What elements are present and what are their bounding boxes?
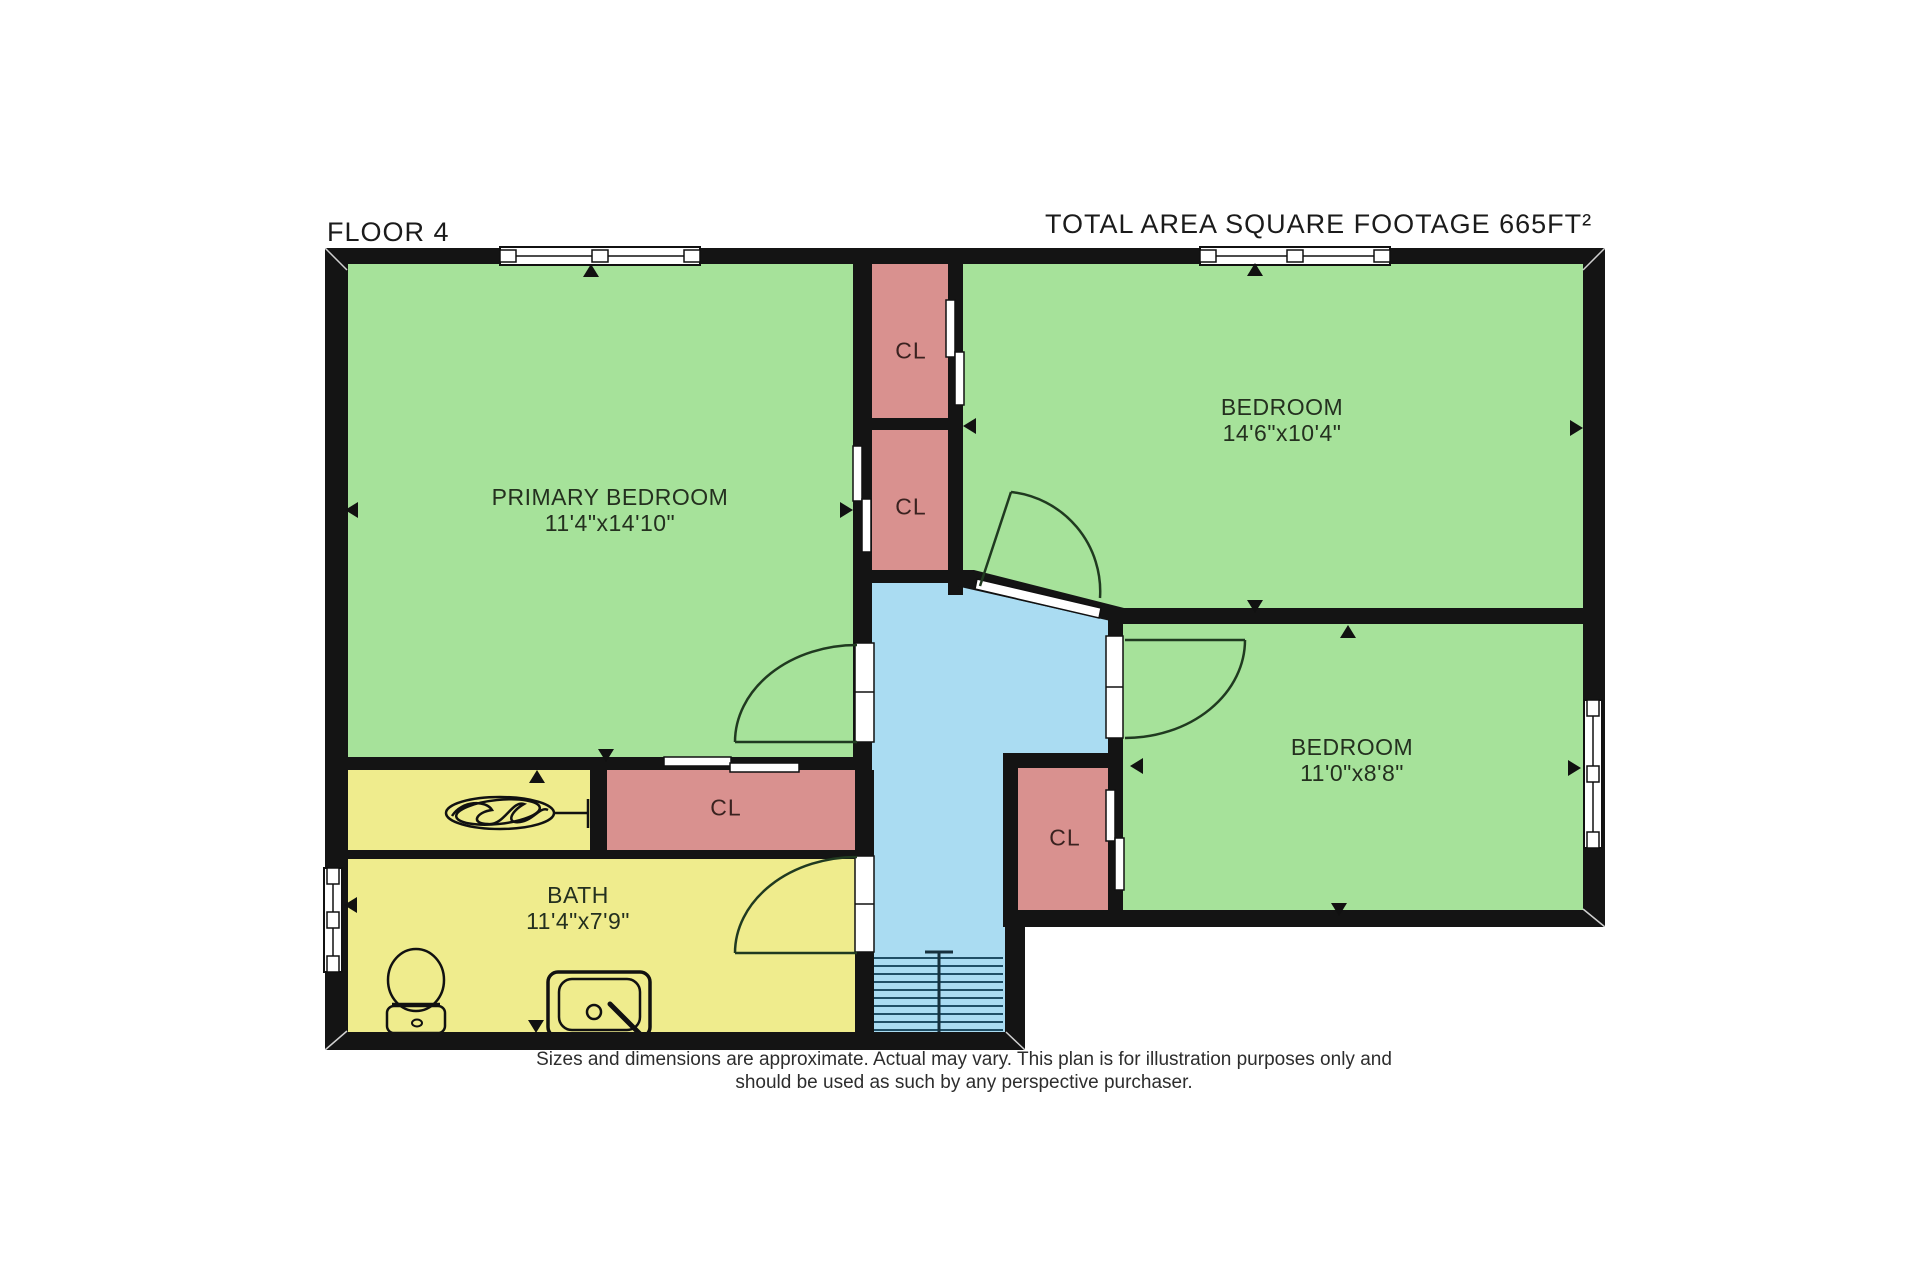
closet-label-top: CL bbox=[895, 338, 926, 365]
window-primary-top-icon bbox=[500, 247, 700, 265]
room-label-bedroom-right: BEDROOM 11'0"x8'8" bbox=[1291, 734, 1413, 786]
window-bedroom-top-icon bbox=[1200, 247, 1390, 265]
room-dimensions: 14'6"x10'4" bbox=[1221, 420, 1343, 446]
room-name: BEDROOM bbox=[1221, 394, 1343, 420]
room-dimensions: 11'4"x14'10" bbox=[492, 510, 729, 536]
disclaimer-line-1: Sizes and dimensions are approximate. Ac… bbox=[0, 1048, 1920, 1071]
room-label-primary-bedroom: PRIMARY BEDROOM 11'4"x14'10" bbox=[492, 484, 729, 536]
window-bath-left-icon bbox=[324, 868, 342, 972]
closet-label-bottom-middle: CL bbox=[710, 795, 741, 822]
room-name: BATH bbox=[526, 882, 630, 908]
room-label-bath: BATH 11'4"x7'9" bbox=[526, 882, 630, 934]
room-dimensions: 11'4"x7'9" bbox=[526, 908, 630, 934]
closet-label-right: CL bbox=[1049, 825, 1080, 852]
floor-label: FLOOR 4 bbox=[327, 217, 450, 248]
window-bedroom-right-icon bbox=[1584, 700, 1602, 848]
total-area-label: TOTAL AREA SQUARE FOOTAGE 665FT² bbox=[1045, 209, 1592, 240]
room-dimensions: 11'0"x8'8" bbox=[1291, 760, 1413, 786]
disclaimer-text: Sizes and dimensions are approximate. Ac… bbox=[0, 1048, 1920, 1094]
room-name: PRIMARY BEDROOM bbox=[492, 484, 729, 510]
bath-strip-area bbox=[336, 764, 600, 855]
closet-label-middle: CL bbox=[895, 494, 926, 521]
room-label-bedroom-top-right: BEDROOM 14'6"x10'4" bbox=[1221, 394, 1343, 446]
floor-plan-canvas: FLOOR 4 TOTAL AREA SQUARE FOOTAGE 665FT²… bbox=[0, 0, 1920, 1280]
disclaimer-line-2: should be used as such by any perspectiv… bbox=[0, 1071, 1920, 1094]
room-name: BEDROOM bbox=[1291, 734, 1413, 760]
